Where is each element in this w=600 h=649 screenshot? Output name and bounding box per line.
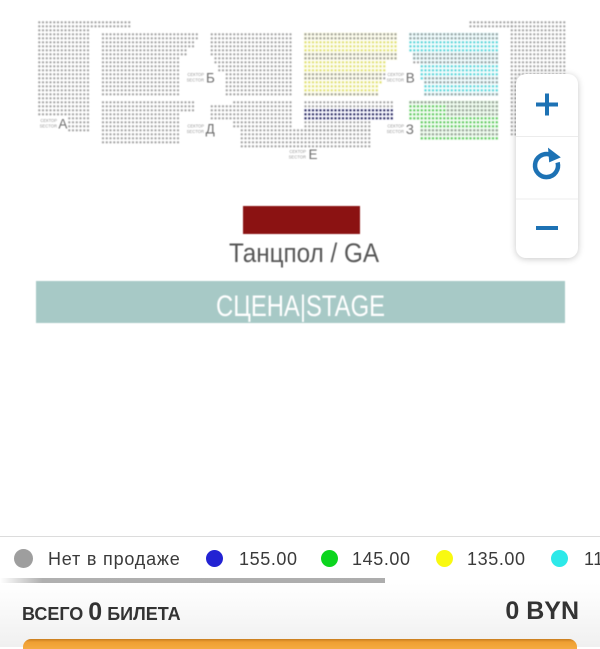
svg-text:А: А: [58, 116, 67, 131]
svg-text:SECTOR: SECTOR: [387, 129, 404, 134]
svg-text:Е: Е: [309, 147, 318, 162]
svg-text:СЕКТОР: СЕКТОР: [387, 72, 404, 77]
svg-text:СЕКТОР: СЕКТОР: [40, 118, 57, 123]
svg-text:Д: Д: [206, 121, 215, 136]
svg-text:СЕКТОР: СЕКТОР: [387, 124, 404, 129]
svg-text:SECTOR: SECTOR: [40, 123, 57, 128]
svg-text:SECTOR: SECTOR: [187, 77, 204, 82]
svg-text:SECTOR: SECTOR: [187, 129, 204, 134]
svg-text:СЦЕНА|STAGE: СЦЕНА|STAGE: [216, 290, 385, 323]
svg-text:SECTOR: SECTOR: [289, 154, 306, 159]
svg-text:СЕКТОР: СЕКТОР: [187, 124, 204, 129]
svg-text:В: В: [406, 71, 415, 86]
svg-text:Танцпол / GA: Танцпол / GA: [229, 238, 379, 268]
svg-text:СЕКТОР: СЕКТОР: [187, 72, 204, 77]
svg-text:З: З: [406, 122, 414, 137]
svg-text:Б: Б: [206, 71, 215, 86]
svg-text:SECTOR: SECTOR: [387, 77, 404, 82]
svg-text:СЕКТОР: СЕКТОР: [289, 149, 306, 154]
